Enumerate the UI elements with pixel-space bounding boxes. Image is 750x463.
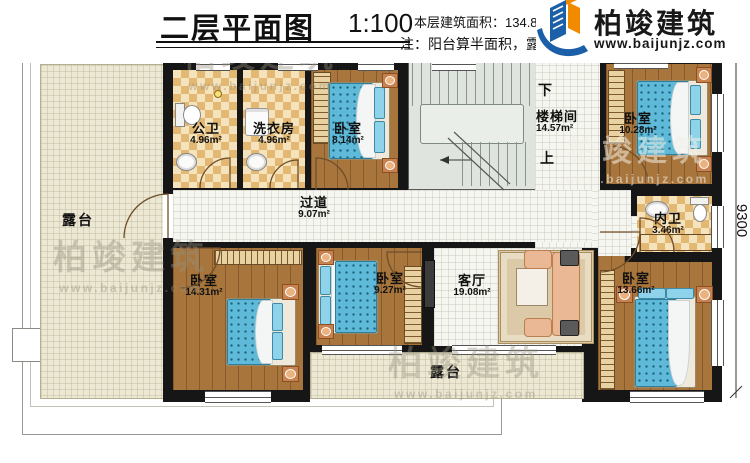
- side-table: [560, 250, 579, 266]
- bedroom-topright-label: 卧室 10.28m²: [606, 112, 670, 137]
- window: [711, 94, 724, 152]
- nightstand: [282, 284, 299, 300]
- stairwell-label: 楼梯间 14.57m²: [536, 110, 600, 135]
- window: [711, 300, 724, 366]
- side-table: [560, 320, 579, 336]
- pillow: [690, 85, 701, 115]
- nightstand: [382, 158, 398, 173]
- laundry-label: 洗衣房 4.96m²: [238, 122, 310, 147]
- sliding-door: [322, 345, 402, 355]
- brand-url: www.baijunjz.com: [594, 36, 727, 51]
- terrace-opening: [452, 345, 556, 355]
- nightstand: [696, 67, 712, 83]
- inner-bath-label: 内卫 3.46m²: [638, 212, 698, 237]
- stair-flight-lower: [462, 142, 531, 186]
- stair-down-label: 下: [538, 80, 552, 100]
- terrace-door-opening: [163, 194, 173, 238]
- bed-blanket: [668, 300, 690, 386]
- inner-bath-door-gap: [631, 216, 637, 248]
- bedroom-top-label: 卧室 8.14m²: [318, 122, 378, 147]
- coffee-table: [516, 268, 548, 306]
- wardrobe: [214, 250, 302, 265]
- window: [205, 391, 271, 403]
- window: [711, 206, 724, 248]
- pillow: [272, 303, 283, 331]
- public-bath-sink: [176, 153, 197, 171]
- nightstand: [318, 324, 334, 339]
- inner-bath-vestibule: [598, 190, 631, 256]
- floor-plan-canvas: 18700 9300 露台: [0, 0, 750, 463]
- bedroom-right-label: 卧室 13.66m²: [600, 272, 672, 297]
- bedroom-mid-label: 卧室 9.27m²: [358, 272, 422, 297]
- title-block: 二层平面图 1:100 本层建筑面积：134.85m² 层高： 注：阳台算半面积…: [0, 0, 750, 63]
- bedroom-left-label: 卧室 14.31m²: [172, 274, 236, 299]
- dimension-right: 9300: [733, 201, 750, 240]
- terrace-bottom-label: 露台: [430, 362, 462, 382]
- stair-up-label: 上: [540, 148, 554, 168]
- nightstand: [282, 366, 299, 382]
- brand-logo: 柏竣建筑 www.baijunjz.com: [536, 0, 750, 63]
- armchair: [524, 250, 552, 269]
- living-room-label: 客厅 19.08m²: [440, 274, 504, 299]
- brand-logo-icon: [536, 0, 594, 60]
- nightstand: [382, 73, 398, 88]
- light-fixture: [214, 90, 222, 98]
- corridor-label: 过道 9.07m²: [282, 196, 346, 221]
- terrace-left-floor: [40, 64, 165, 399]
- nightstand: [696, 156, 712, 172]
- stair-landing: [420, 104, 524, 144]
- pillow: [272, 332, 283, 360]
- tv: [424, 260, 435, 308]
- pillow: [690, 119, 701, 149]
- bed-blanket: [255, 300, 273, 364]
- window: [630, 391, 704, 403]
- nightstand: [318, 250, 334, 265]
- pillar: [12, 328, 42, 362]
- armchair: [524, 318, 552, 337]
- terrace-left-label: 露台: [62, 210, 94, 230]
- corridor-floor: [173, 190, 592, 242]
- pillow: [374, 87, 385, 119]
- pillow: [320, 296, 331, 325]
- title-underline: [156, 41, 410, 48]
- laundry-sink: [246, 153, 267, 171]
- bed-blanket: [670, 82, 689, 154]
- pillow: [320, 266, 331, 295]
- public-bath-label: 公卫 4.96m²: [178, 122, 234, 147]
